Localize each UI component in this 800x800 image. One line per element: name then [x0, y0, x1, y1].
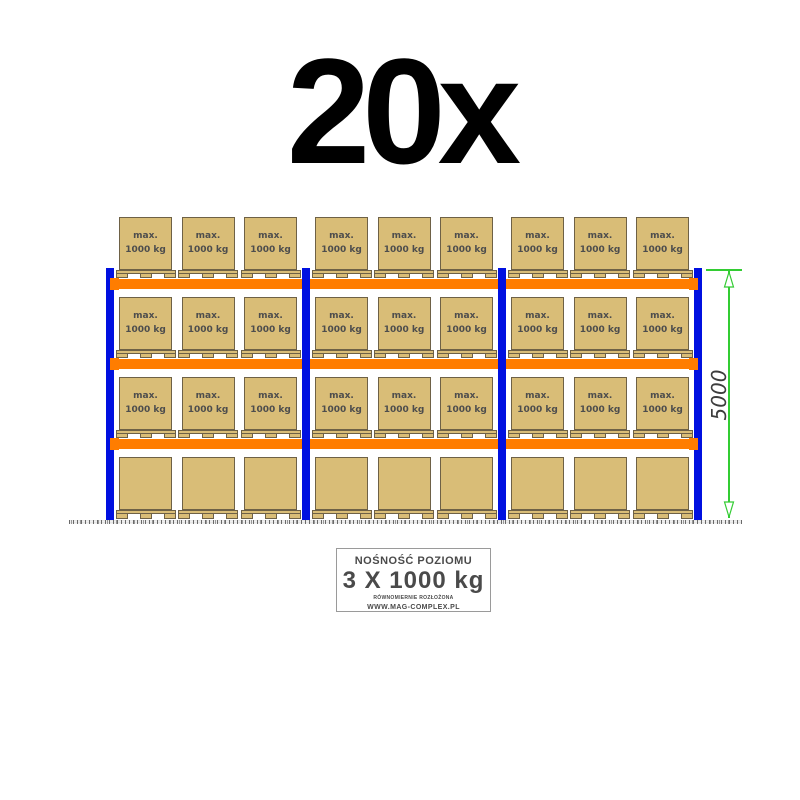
pallet-foot: [178, 433, 190, 438]
pallet-foot: [532, 433, 544, 438]
pallet-foot: [437, 273, 449, 278]
pallet-foot: [594, 433, 606, 438]
box-label: 1000 kg: [580, 404, 621, 418]
pallet-foot: [422, 353, 434, 358]
pallet-foot: [312, 273, 324, 278]
pallet-foot: [202, 433, 214, 438]
pallet-foot: [164, 513, 176, 519]
pallet-foot: [178, 513, 190, 519]
pallet-box: [244, 457, 297, 510]
box-label: max.: [258, 310, 283, 324]
pallet-foot: [336, 513, 348, 519]
pallet-box-unit: max.1000 kg: [570, 217, 630, 279]
pallet-foot: [461, 513, 473, 519]
pallet-box: max.1000 kg: [244, 217, 297, 270]
pallet-foot: [485, 353, 497, 358]
pallet-box-unit: max.1000 kg: [116, 297, 176, 359]
pallet-box: max.1000 kg: [511, 297, 564, 350]
pallet-foot: [633, 353, 645, 358]
box-label: max.: [392, 390, 417, 404]
pallet-foot: [241, 433, 253, 438]
box-label: 1000 kg: [642, 324, 683, 338]
pallet-box-unit: max.1000 kg: [241, 377, 301, 439]
box-label: 1000 kg: [125, 404, 166, 418]
pallet-foot: [360, 433, 372, 438]
pallet-foot: [570, 433, 582, 438]
pallet-foot: [398, 433, 410, 438]
pallet-foot: [485, 433, 497, 438]
box-label: 1000 kg: [321, 324, 362, 338]
box-label: max.: [329, 310, 354, 324]
pallet-box-unit: max.1000 kg: [116, 217, 176, 279]
pallet-foot: [312, 513, 324, 519]
box-label: max.: [196, 230, 221, 244]
quantity-label: 20x: [0, 36, 800, 196]
pallet-box-unit: [570, 457, 630, 520]
pallet-box-unit: max.1000 kg: [508, 217, 568, 279]
rack-post: [106, 268, 114, 520]
rack-beam: [106, 439, 702, 449]
beam-end-cap: [110, 278, 119, 290]
pallet-foot: [437, 433, 449, 438]
pallet-foot: [570, 273, 582, 278]
beam-end-cap: [689, 358, 698, 370]
pallet-foot: [618, 353, 630, 358]
pallet-box: max.1000 kg: [574, 217, 627, 270]
box-label: max.: [525, 230, 550, 244]
pallet-foot: [532, 513, 544, 519]
box-label: max.: [258, 230, 283, 244]
box-label: 1000 kg: [580, 324, 621, 338]
pallet-foot: [202, 353, 214, 358]
pallet-box: max.1000 kg: [182, 297, 235, 350]
pallet-box-unit: max.1000 kg: [178, 217, 238, 279]
box-label: max.: [588, 230, 613, 244]
pallet-foot: [374, 273, 386, 278]
pallet-foot: [633, 513, 645, 519]
pallet-foot: [289, 273, 301, 278]
info-panel-title: NOŚNOŚĆ POZIOMU: [337, 555, 490, 567]
pallet-box: [119, 457, 172, 510]
pallet-box-unit: [116, 457, 176, 520]
pallet-foot: [265, 273, 277, 278]
pallet-foot: [657, 353, 669, 358]
pallet-box-unit: [312, 457, 372, 520]
pallet-box: max.1000 kg: [440, 377, 493, 430]
rack-post: [498, 268, 506, 520]
rack-post: [694, 268, 702, 520]
pallet-box: [636, 457, 689, 510]
pallet-foot: [633, 273, 645, 278]
pallet-foot: [422, 433, 434, 438]
pallet-foot: [265, 433, 277, 438]
box-label: max.: [258, 390, 283, 404]
pallet-foot: [360, 273, 372, 278]
box-label: max.: [196, 390, 221, 404]
pallet-box: max.1000 kg: [636, 377, 689, 430]
pallet-box: max.1000 kg: [244, 297, 297, 350]
pallet-box-unit: max.1000 kg: [508, 377, 568, 439]
pallet-foot: [461, 273, 473, 278]
pallet-foot: [360, 513, 372, 519]
pallet-box: max.1000 kg: [378, 297, 431, 350]
pallet-foot: [594, 353, 606, 358]
pallet-foot: [437, 353, 449, 358]
pallet-box-unit: max.1000 kg: [508, 297, 568, 359]
pallet-box-unit: [178, 457, 238, 520]
pallet-foot: [422, 273, 434, 278]
pallet-foot: [570, 513, 582, 519]
pallet-box-unit: max.1000 kg: [633, 297, 693, 359]
pallet-box: max.1000 kg: [119, 217, 172, 270]
pallet-box-unit: max.1000 kg: [312, 297, 372, 359]
info-panel: NOŚNOŚĆ POZIOMU 3 X 1000 kg RÓWNOMIERNIE…: [336, 548, 491, 612]
dimension-label: 5000: [708, 368, 730, 422]
pallet-foot: [312, 433, 324, 438]
box-label: 1000 kg: [188, 404, 229, 418]
pallet-foot: [178, 273, 190, 278]
pallet-foot: [336, 433, 348, 438]
pallet-foot: [178, 353, 190, 358]
pallet-foot: [374, 513, 386, 519]
pallet-box-unit: [508, 457, 568, 520]
box-label: 1000 kg: [446, 244, 487, 258]
box-label: 1000 kg: [250, 244, 291, 258]
pallet-box: max.1000 kg: [574, 297, 627, 350]
pallet-box: [315, 457, 368, 510]
box-label: 1000 kg: [125, 324, 166, 338]
pallet-foot: [398, 513, 410, 519]
box-label: 1000 kg: [384, 404, 425, 418]
pallet-box: [574, 457, 627, 510]
pallet-foot: [508, 273, 520, 278]
ground-line: [69, 520, 742, 524]
pallet-foot: [226, 433, 238, 438]
box-label: max.: [329, 390, 354, 404]
pallet-foot: [570, 353, 582, 358]
pallet-foot: [594, 513, 606, 519]
pallet-foot: [164, 353, 176, 358]
pallet-box-unit: max.1000 kg: [570, 377, 630, 439]
pallet-foot: [618, 433, 630, 438]
box-label: max.: [454, 310, 479, 324]
pallet-foot: [241, 353, 253, 358]
info-panel-note: RÓWNOMIERNIE ROZŁOŻONA: [337, 595, 490, 601]
pallet-box: [440, 457, 493, 510]
pallet-foot: [116, 513, 128, 519]
pallet-box-unit: max.1000 kg: [116, 377, 176, 439]
box-label: 1000 kg: [188, 244, 229, 258]
pallet-box: max.1000 kg: [511, 377, 564, 430]
pallet-box-unit: max.1000 kg: [437, 377, 497, 439]
pallet-foot: [374, 353, 386, 358]
pallet-foot: [532, 353, 544, 358]
pallet-box-unit: [241, 457, 301, 520]
box-label: 1000 kg: [321, 404, 362, 418]
pallet-box: max.1000 kg: [315, 297, 368, 350]
pallet-foot: [461, 433, 473, 438]
info-panel-capacity: 3 X 1000 kg: [337, 568, 490, 593]
pallet-box-unit: max.1000 kg: [374, 297, 434, 359]
pallet-foot: [556, 273, 568, 278]
pallet-box-unit: max.1000 kg: [312, 217, 372, 279]
rack-beam: [106, 359, 702, 369]
pallet-box: max.1000 kg: [244, 377, 297, 430]
pallet-foot: [556, 433, 568, 438]
box-label: 1000 kg: [250, 404, 291, 418]
pallet-box-unit: max.1000 kg: [312, 377, 372, 439]
pallet-box-unit: [374, 457, 434, 520]
pallet-foot: [202, 273, 214, 278]
pallet-foot: [289, 513, 301, 519]
pallet-box-unit: max.1000 kg: [437, 297, 497, 359]
box-label: max.: [392, 230, 417, 244]
pallet-box: max.1000 kg: [315, 217, 368, 270]
pallet-foot: [398, 353, 410, 358]
pallet-box-unit: [633, 457, 693, 520]
box-label: 1000 kg: [321, 244, 362, 258]
pallet-foot: [241, 513, 253, 519]
pallet-foot: [360, 353, 372, 358]
beam-end-cap: [110, 358, 119, 370]
pallet-foot: [265, 353, 277, 358]
pallet-box-unit: max.1000 kg: [178, 377, 238, 439]
pallet-box-unit: [437, 457, 497, 520]
box-label: 1000 kg: [517, 404, 558, 418]
pallet-foot: [508, 513, 520, 519]
pallet-box-unit: max.1000 kg: [241, 217, 301, 279]
pallet-foot: [289, 353, 301, 358]
box-label: 1000 kg: [188, 324, 229, 338]
box-label: max.: [133, 230, 158, 244]
pallet-box-unit: max.1000 kg: [633, 377, 693, 439]
pallet-box: max.1000 kg: [511, 217, 564, 270]
box-label: 1000 kg: [446, 324, 487, 338]
box-label: max.: [329, 230, 354, 244]
pallet-foot: [226, 513, 238, 519]
pallet-foot: [140, 433, 152, 438]
pallet-box-unit: max.1000 kg: [570, 297, 630, 359]
beam-end-cap: [110, 438, 119, 450]
pallet-foot: [164, 433, 176, 438]
pallet-box-unit: max.1000 kg: [437, 217, 497, 279]
rack-beam: [106, 279, 702, 289]
pallet-box: max.1000 kg: [378, 377, 431, 430]
pallet-box: [378, 457, 431, 510]
pallet-box: max.1000 kg: [119, 377, 172, 430]
pallet-foot: [140, 513, 152, 519]
pallet-foot: [374, 433, 386, 438]
box-label: 1000 kg: [250, 324, 291, 338]
pallet-box-unit: max.1000 kg: [178, 297, 238, 359]
box-label: max.: [454, 230, 479, 244]
info-panel-website: WWW.MAG-COMPLEX.PL: [337, 604, 490, 611]
pallet-foot: [312, 353, 324, 358]
pallet-foot: [241, 273, 253, 278]
pallet-foot: [594, 273, 606, 278]
pallet-box: max.1000 kg: [574, 377, 627, 430]
pallet-foot: [618, 273, 630, 278]
box-label: max.: [133, 390, 158, 404]
pallet-foot: [398, 273, 410, 278]
pallet-box-unit: max.1000 kg: [374, 377, 434, 439]
pallet-box-unit: max.1000 kg: [633, 217, 693, 279]
pallet-foot: [508, 433, 520, 438]
pallet-foot: [265, 513, 277, 519]
box-label: 1000 kg: [642, 244, 683, 258]
pallet-box: max.1000 kg: [182, 377, 235, 430]
box-label: 1000 kg: [517, 244, 558, 258]
pallet-rack-diagram: 20x max.1000 kgmax.1000 kgmax.1000 kgmax…: [0, 0, 800, 800]
pallet-foot: [485, 513, 497, 519]
pallet-box: max.1000 kg: [182, 217, 235, 270]
box-label: max.: [525, 310, 550, 324]
pallet-foot: [485, 273, 497, 278]
box-label: max.: [196, 310, 221, 324]
pallet-foot: [422, 513, 434, 519]
pallet-foot: [336, 273, 348, 278]
box-label: 1000 kg: [384, 324, 425, 338]
box-label: 1000 kg: [642, 404, 683, 418]
dimension-arrowhead-bottom-icon: [723, 501, 735, 518]
pallet-foot: [202, 513, 214, 519]
pallet-foot: [633, 433, 645, 438]
pallet-foot: [532, 273, 544, 278]
pallet-foot: [140, 353, 152, 358]
pallet-box: max.1000 kg: [315, 377, 368, 430]
rack-post: [302, 268, 310, 520]
pallet-foot: [289, 433, 301, 438]
pallet-box: max.1000 kg: [636, 297, 689, 350]
pallet-box: max.1000 kg: [378, 217, 431, 270]
box-label: max.: [650, 390, 675, 404]
box-label: max.: [588, 310, 613, 324]
pallet-foot: [226, 273, 238, 278]
box-label: max.: [588, 390, 613, 404]
pallet-box: max.1000 kg: [119, 297, 172, 350]
box-label: 1000 kg: [125, 244, 166, 258]
box-label: max.: [454, 390, 479, 404]
box-label: 1000 kg: [517, 324, 558, 338]
box-label: max.: [650, 310, 675, 324]
pallet-box: max.1000 kg: [440, 217, 493, 270]
beam-end-cap: [689, 438, 698, 450]
dimension-arrowhead-top-icon: [723, 271, 735, 288]
pallet-box: max.1000 kg: [440, 297, 493, 350]
pallet-foot: [681, 513, 693, 519]
pallet-foot: [657, 433, 669, 438]
box-label: 1000 kg: [384, 244, 425, 258]
pallet-box-unit: max.1000 kg: [374, 217, 434, 279]
pallet-foot: [657, 513, 669, 519]
pallet-foot: [657, 273, 669, 278]
box-label: max.: [650, 230, 675, 244]
box-label: max.: [133, 310, 158, 324]
pallet-foot: [437, 513, 449, 519]
beam-end-cap: [689, 278, 698, 290]
pallet-foot: [618, 513, 630, 519]
pallet-foot: [226, 353, 238, 358]
box-label: 1000 kg: [580, 244, 621, 258]
box-label: max.: [525, 390, 550, 404]
pallet-foot: [336, 353, 348, 358]
pallet-foot: [164, 273, 176, 278]
pallet-foot: [556, 513, 568, 519]
pallet-box: max.1000 kg: [636, 217, 689, 270]
box-label: 1000 kg: [446, 404, 487, 418]
pallet-foot: [140, 273, 152, 278]
pallet-box: [511, 457, 564, 510]
pallet-foot: [508, 353, 520, 358]
pallet-box-unit: max.1000 kg: [241, 297, 301, 359]
box-label: max.: [392, 310, 417, 324]
pallet-foot: [461, 353, 473, 358]
pallet-foot: [556, 353, 568, 358]
pallet-box: [182, 457, 235, 510]
